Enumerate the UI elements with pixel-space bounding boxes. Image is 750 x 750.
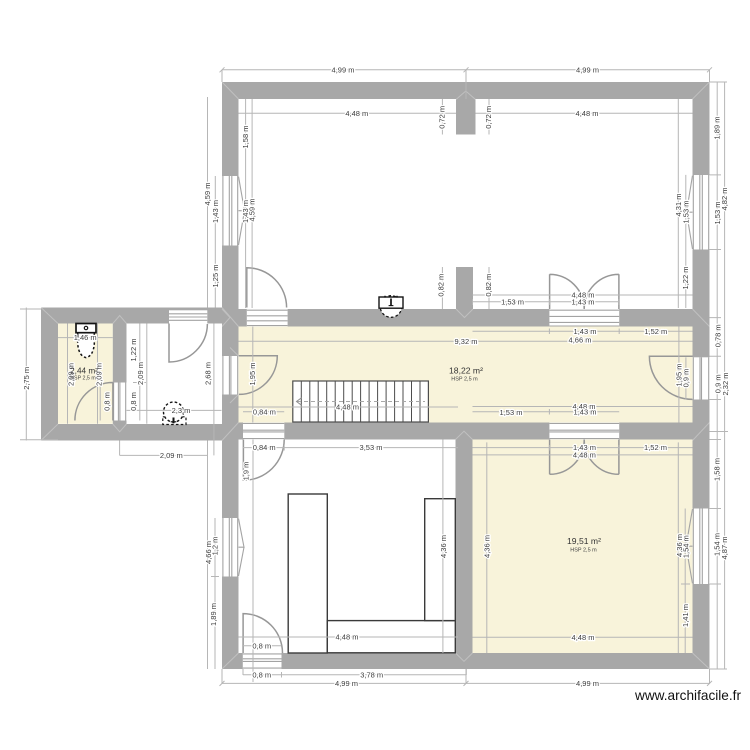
svg-text:0,8 m: 0,8 m xyxy=(252,641,271,650)
svg-text:2,32 m: 2,32 m xyxy=(721,373,730,396)
svg-text:4,48 m: 4,48 m xyxy=(576,109,599,118)
svg-text:19,51 m²: 19,51 m² xyxy=(567,536,601,546)
svg-text:1,22 m: 1,22 m xyxy=(129,339,138,362)
svg-text:1,89 m: 1,89 m xyxy=(713,117,722,140)
svg-text:1,95 m: 1,95 m xyxy=(248,363,257,386)
svg-text:1,43 m: 1,43 m xyxy=(574,327,597,336)
svg-text:4,36 m: 4,36 m xyxy=(439,535,448,558)
svg-text:1,22 m: 1,22 m xyxy=(681,267,690,290)
svg-text:1,58 m: 1,58 m xyxy=(713,458,722,481)
svg-text:0,84 m: 0,84 m xyxy=(253,443,276,452)
svg-text:2,68 m: 2,68 m xyxy=(203,362,212,385)
svg-text:1,46 m: 1,46 m xyxy=(74,333,97,342)
svg-text:2,75 m: 2,75 m xyxy=(22,367,31,390)
svg-text:3,53 m: 3,53 m xyxy=(360,443,383,452)
svg-text:0,8 m: 0,8 m xyxy=(252,670,271,679)
svg-text:4,66 m: 4,66 m xyxy=(569,336,592,345)
svg-text:0,72 m: 0,72 m xyxy=(484,106,493,129)
svg-text:4,59 m: 4,59 m xyxy=(248,199,257,222)
svg-text:1,52 m: 1,52 m xyxy=(644,327,667,336)
svg-text:1,2 m: 1,2 m xyxy=(210,537,219,556)
svg-text:18,22 m²: 18,22 m² xyxy=(449,366,483,376)
svg-text:4,48 m: 4,48 m xyxy=(336,633,359,642)
svg-text:4,36 m: 4,36 m xyxy=(482,535,491,558)
svg-text:4,48 m: 4,48 m xyxy=(573,451,596,460)
svg-text:1,53 m: 1,53 m xyxy=(501,297,524,306)
svg-text:4,48 m: 4,48 m xyxy=(572,633,595,642)
svg-text:4,99 m: 4,99 m xyxy=(335,679,358,688)
svg-text:0,9 m: 0,9 m xyxy=(682,369,691,388)
svg-text:www.archifacile.fr: www.archifacile.fr xyxy=(634,687,741,703)
svg-text:4,82 m: 4,82 m xyxy=(720,188,729,211)
svg-text:0,8 m: 0,8 m xyxy=(103,392,112,411)
svg-text:2,3 m: 2,3 m xyxy=(172,406,191,415)
svg-text:2,09 m: 2,09 m xyxy=(136,362,145,385)
svg-text:1,43 m: 1,43 m xyxy=(211,200,220,223)
svg-text:2,44 m²: 2,44 m² xyxy=(70,366,98,375)
svg-text:HSP 2,5 m: HSP 2,5 m xyxy=(570,548,597,554)
svg-text:1,52 m: 1,52 m xyxy=(644,443,667,452)
svg-text:0,82 m: 0,82 m xyxy=(484,274,493,297)
svg-text:0,82 m: 0,82 m xyxy=(437,274,446,297)
svg-text:0,72 m: 0,72 m xyxy=(437,106,446,129)
svg-text:0,8 m: 0,8 m xyxy=(129,392,138,411)
svg-text:HSP 2,5 m: HSP 2,5 m xyxy=(451,377,478,383)
svg-text:4,87 m: 4,87 m xyxy=(720,537,729,560)
svg-text:1,53 m: 1,53 m xyxy=(500,408,523,417)
svg-text:1,9 m: 1,9 m xyxy=(242,462,251,481)
svg-text:4,48 m: 4,48 m xyxy=(336,403,359,412)
svg-text:2,09 m: 2,09 m xyxy=(160,451,183,460)
svg-text:HSP 2,5 m: HSP 2,5 m xyxy=(70,376,96,382)
svg-text:1,25 m: 1,25 m xyxy=(211,265,220,288)
svg-text:1,58 m: 1,58 m xyxy=(241,126,250,149)
svg-text:1,89 m: 1,89 m xyxy=(209,603,218,626)
svg-text:9,32 m: 9,32 m xyxy=(455,337,478,346)
svg-text:1,54 m: 1,54 m xyxy=(681,535,690,558)
svg-text:1,43 m: 1,43 m xyxy=(572,297,595,306)
svg-text:4,99 m: 4,99 m xyxy=(332,65,355,74)
svg-text:1,43 m: 1,43 m xyxy=(574,407,597,416)
svg-text:0,78 m: 0,78 m xyxy=(713,324,722,347)
svg-text:1,41 m: 1,41 m xyxy=(681,604,690,627)
svg-text:0,84 m: 0,84 m xyxy=(253,407,276,416)
svg-text:4,48 m: 4,48 m xyxy=(345,109,368,118)
svg-text:4,99 m: 4,99 m xyxy=(576,65,599,74)
svg-text:3,78 m: 3,78 m xyxy=(360,670,383,679)
svg-text:1,53 m: 1,53 m xyxy=(682,201,691,224)
svg-text:4,99 m: 4,99 m xyxy=(576,679,599,688)
